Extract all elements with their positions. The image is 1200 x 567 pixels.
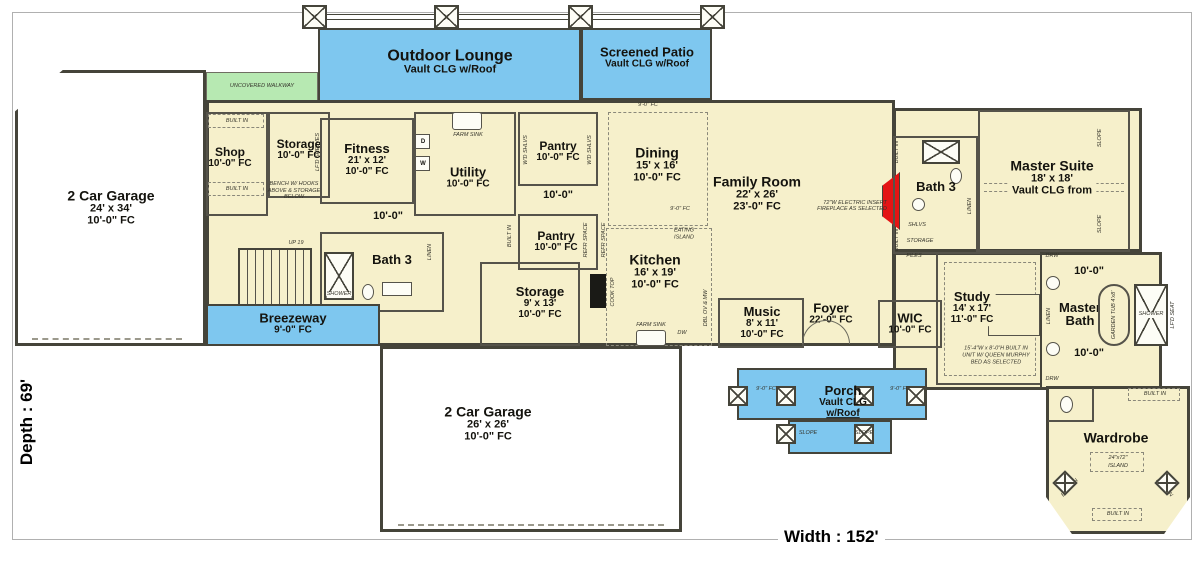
- wall-divider: [1040, 252, 1042, 390]
- shop-label: Shop: [208, 146, 251, 159]
- slope-note: SLOPE: [855, 431, 873, 437]
- dim-note: 10'-0": [1074, 266, 1104, 278]
- built-in-note: BUILT IN: [1107, 512, 1129, 518]
- shlvs-note: SHLVS: [908, 223, 926, 229]
- toilet-icon: [1060, 396, 1073, 413]
- patio-beam: [312, 14, 714, 20]
- music-label: Music: [740, 305, 783, 319]
- garden-tub-note: GARDEN TUB 4'x8': [1111, 291, 1117, 340]
- column-icon: [700, 5, 725, 29]
- vanity-icon: [382, 282, 412, 296]
- porch-lower: [788, 420, 892, 454]
- shower-note: SHOWER: [1139, 312, 1164, 318]
- utility-label: Utility: [446, 166, 489, 180]
- farm-sink-note: FARM SINK: [453, 133, 483, 139]
- dbl-oven-note: DBL OV & MW: [703, 290, 709, 327]
- shower-note: SHOWER: [327, 292, 352, 298]
- files-note: FILES: [906, 254, 921, 260]
- eating-island-note: EATING: [674, 227, 694, 234]
- built-in-note: BUILT IN: [1144, 392, 1166, 398]
- foyer-label: Foyer: [809, 302, 852, 316]
- lfd-seat-note: LF'D SEAT: [1170, 302, 1176, 329]
- toilet-icon: [362, 284, 374, 300]
- hall-dim: 10'-0": [373, 211, 403, 223]
- sink-icon: [1046, 342, 1060, 356]
- fitness-label: Fitness: [344, 142, 390, 156]
- storage-note: STORAGE: [907, 239, 934, 245]
- cooktop-icon: [590, 274, 606, 308]
- column-icon: [776, 386, 796, 406]
- column-icon: [302, 5, 327, 29]
- slope-note: SLOPE: [1097, 129, 1103, 147]
- study-label: Study: [951, 290, 994, 304]
- up19-note: UP 19: [288, 241, 303, 247]
- garage-door-line: [32, 338, 182, 340]
- stairs: [238, 248, 312, 308]
- width-dimension: Width : 152': [778, 527, 885, 547]
- refr-space-note: REFR SPACE: [583, 223, 589, 258]
- garage-left-label: 2 Car Garage: [67, 189, 154, 204]
- cook-top-note: COOK TOP: [610, 278, 616, 307]
- storage-mid-label: Storage: [516, 285, 564, 299]
- washer-icon: W: [415, 156, 430, 171]
- garage-bottom-label: 2 Car Garage: [444, 405, 531, 420]
- column-icon: [776, 424, 796, 444]
- sink-icon: [912, 198, 925, 211]
- drw-note: DRW: [1045, 377, 1058, 383]
- outdoor-lounge-label: Outdoor Lounge: [387, 47, 512, 64]
- fc9-note: 9'-0" FC: [756, 387, 776, 393]
- master-suite-label: Master Suite: [1010, 159, 1093, 174]
- sink-icon: [1046, 276, 1060, 290]
- slope-note: SLOPE: [799, 431, 817, 437]
- column-icon: [728, 386, 748, 406]
- farm-sink-icon: [452, 112, 482, 130]
- linen-note: LINEN: [1046, 308, 1052, 324]
- hall-dim: 10'-0": [543, 190, 573, 202]
- shower-icon: [922, 140, 960, 164]
- murphy-note: 15'-4"W x 8'-0"H BUILT IN: [962, 346, 1030, 353]
- slope-note: SLOPE: [1097, 215, 1103, 233]
- bath3-left-label: Bath 3: [372, 253, 412, 267]
- built-in-note: BUILT IN: [226, 187, 248, 193]
- screened-patio-label: Screened Patio: [600, 46, 694, 60]
- murphy-bed-icon: [988, 294, 1040, 336]
- fc9-note: 9'-0" FC: [668, 207, 692, 213]
- column-icon: [568, 5, 593, 29]
- floor-plan: Depth : 69' Width : 152' Outdoor Lounge …: [0, 0, 1200, 567]
- family-room-label: Family Room: [713, 175, 801, 190]
- bench-note: BENCH W/ HOOKS: [268, 181, 320, 188]
- wd-shlvs-note: W'D SHLVS: [587, 135, 593, 164]
- kitchen-sink-icon: [636, 330, 666, 346]
- drw-note: DRW: [1045, 254, 1058, 260]
- pantry-bottom-label: Pantry: [534, 230, 577, 243]
- garage-door-line: [398, 524, 664, 526]
- porch-label: Porch: [819, 384, 867, 398]
- wardrobe-label: Wardrobe: [1084, 430, 1149, 445]
- linen-note: LINEN: [967, 198, 973, 214]
- dim-note: 10'-0": [1074, 348, 1104, 360]
- dryer-icon: D: [415, 134, 430, 149]
- wd-shlvs-note: W'D SHLVS: [523, 135, 529, 164]
- dining-label: Dining: [633, 146, 681, 161]
- farm-sink-note: FARM SINK: [636, 323, 666, 329]
- fc9-note: 9'-0" FC: [636, 103, 660, 109]
- island-note: 24"x72": [1109, 456, 1128, 462]
- built-in-note: BUILT IN: [507, 225, 513, 247]
- linen-note: LINEN: [427, 244, 433, 260]
- dw-note: DW: [677, 331, 686, 337]
- walkway-label: UNCOVERED WALKWAY: [230, 84, 294, 90]
- bath3-right-label: Bath 3: [916, 180, 956, 194]
- kitchen-label: Kitchen: [629, 253, 680, 268]
- column-icon: [434, 5, 459, 29]
- depth-dimension: Depth : 69': [17, 373, 37, 471]
- fc9-note: 9'-0" FC: [890, 387, 910, 393]
- breezeway-label: Breezeway: [259, 312, 326, 326]
- wic-label: WIC: [888, 312, 931, 326]
- pantry-top-label: Pantry: [536, 140, 579, 153]
- built-in-note: BUILT IN: [226, 119, 248, 125]
